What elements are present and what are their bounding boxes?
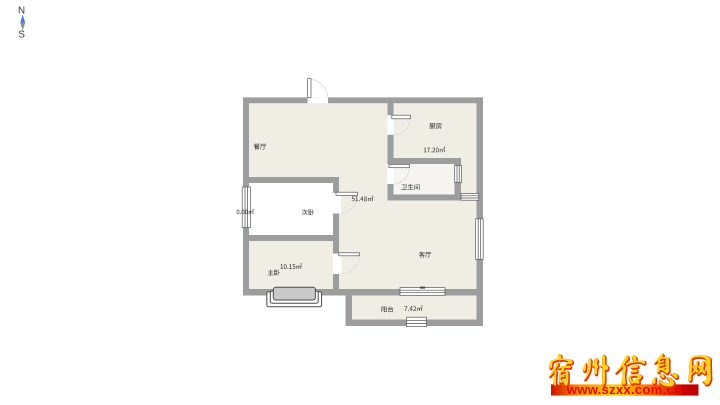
svg-text:S: S [18, 29, 25, 40]
svg-text:N: N [18, 5, 25, 16]
